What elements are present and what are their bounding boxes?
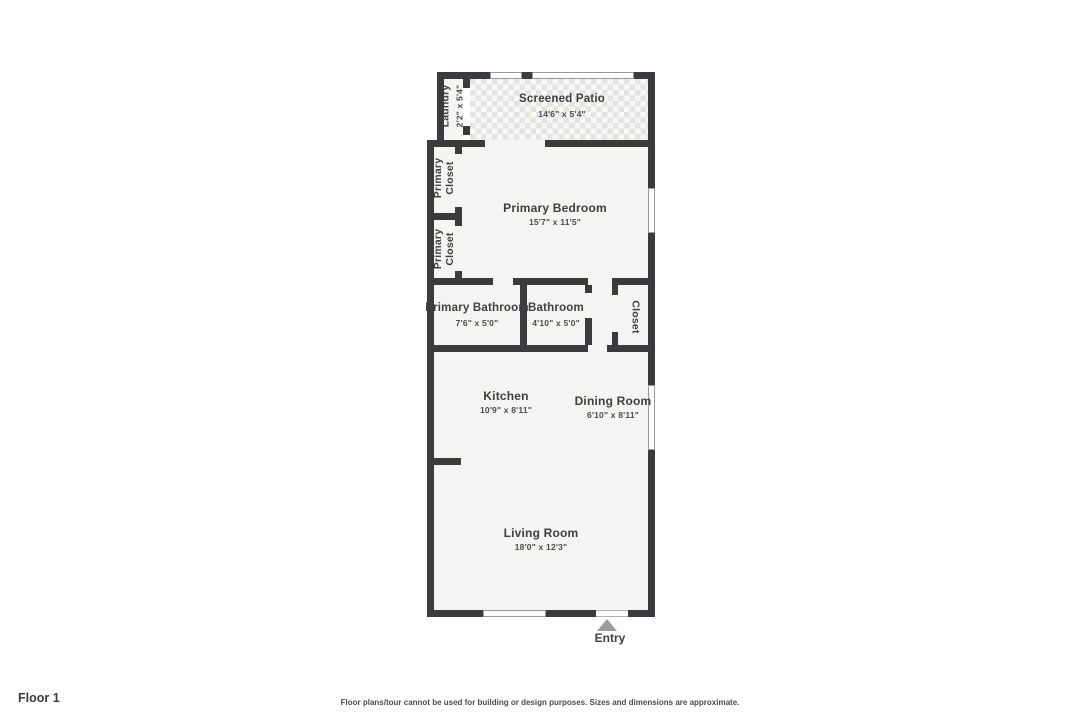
floor-plan-canvas: Entry Laundry 2'2" x 5'4" Screened Patio… xyxy=(0,0,1080,720)
room-name: Kitchen xyxy=(480,389,532,403)
room-name: Laundry xyxy=(440,85,453,128)
wall-segment xyxy=(648,72,655,147)
room-label-closet: Closet xyxy=(629,300,642,333)
room-label-bathroom: Bathroom 4'10" x 5'0" xyxy=(528,302,584,328)
wall-segment xyxy=(522,72,532,79)
room-label-primary-closet-2: Primary Closet xyxy=(432,220,456,278)
room-label-primary-bathroom: Primary Bathroom 7'6" x 5'0" xyxy=(425,302,529,328)
wall-segment xyxy=(545,140,655,147)
wall-segment xyxy=(427,458,461,465)
wall-segment xyxy=(612,332,618,345)
room-name: Primary Closet xyxy=(432,220,456,278)
wall-segment xyxy=(612,278,655,285)
room-dims: 18'0" x 12'3" xyxy=(504,542,579,552)
room-name: Closet xyxy=(629,300,642,333)
wall-segment xyxy=(607,345,655,352)
room-dims: 4'10" x 5'0" xyxy=(528,318,584,328)
wall-segment xyxy=(437,72,490,79)
room-name: Screened Patio xyxy=(519,93,605,107)
room-name: Dining Room xyxy=(575,394,652,408)
room-dims: 2'2" x 5'4" xyxy=(454,85,464,128)
window xyxy=(532,72,634,79)
room-name: Bathroom xyxy=(528,302,584,316)
room-label-living-room: Living Room 18'0" x 12'3" xyxy=(504,526,579,552)
entry-label: Entry xyxy=(595,631,626,645)
room-name: Primary Closet xyxy=(432,149,456,207)
floor-label: Floor 1 xyxy=(18,691,60,705)
room-label-screened-patio: Screened Patio 14'6" x 5'4" xyxy=(519,93,605,119)
room-label-kitchen: Kitchen 10'9" x 8'11" xyxy=(480,389,532,415)
room-label-laundry: Laundry 2'2" x 5'4" xyxy=(440,85,465,128)
disclaimer-text: Floor plans/tour cannot be used for buil… xyxy=(341,698,740,707)
wall-segment xyxy=(427,278,493,285)
room-name: Primary Bathroom xyxy=(425,302,529,316)
room-name: Primary Bedroom xyxy=(503,201,607,215)
wall-segment xyxy=(427,213,462,220)
room-name: Living Room xyxy=(504,526,579,540)
wall-segment xyxy=(628,610,655,617)
room-dims: 10'9" x 8'11" xyxy=(480,405,532,415)
entry-arrow-icon xyxy=(597,619,617,631)
wall-segment xyxy=(546,610,596,617)
wall-segment xyxy=(585,285,592,293)
entry-door-opening xyxy=(596,610,628,617)
window xyxy=(648,188,655,233)
room-label-primary-bedroom: Primary Bedroom 15'7" x 11'5" xyxy=(503,201,607,227)
window xyxy=(490,72,522,79)
room-dims: 15'7" x 11'5" xyxy=(503,217,607,227)
room-dims: 14'6" x 5'4" xyxy=(519,109,605,119)
wall-segment xyxy=(585,318,592,345)
wall-segment xyxy=(612,285,618,295)
room-dims: 6'10" x 8'11" xyxy=(575,410,652,420)
window xyxy=(483,610,546,617)
wall-exterior-left xyxy=(427,140,434,617)
room-label-dining-room: Dining Room 6'10" x 8'11" xyxy=(575,394,652,420)
wall-segment xyxy=(427,610,483,617)
wall-segment xyxy=(427,345,588,352)
room-dims: 7'6" x 5'0" xyxy=(425,318,529,328)
wall-segment xyxy=(513,278,588,285)
room-label-primary-closet-1: Primary Closet xyxy=(432,149,456,207)
